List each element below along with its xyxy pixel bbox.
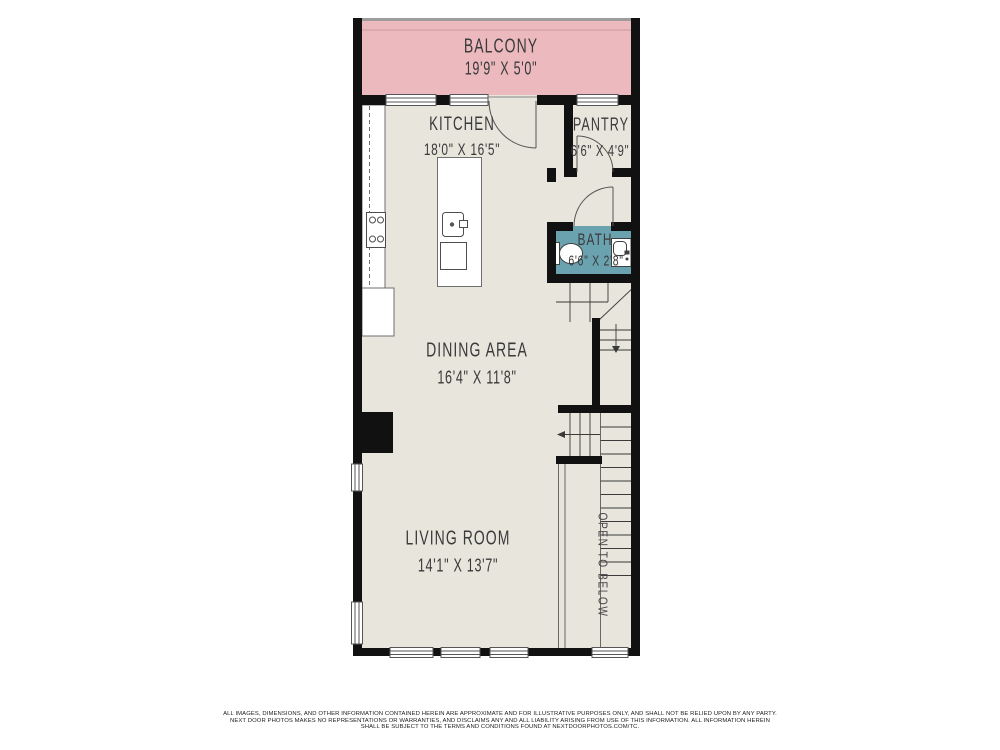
window-symbol [592,648,628,658]
window-symbol [490,648,528,658]
wall-stair-mid [556,456,602,464]
room-label-kitchen: KITCHEN [429,114,495,136]
room-label-dining: DINING AREA [426,340,528,363]
disclaimer-text: ALL IMAGES, DIMENSIONS, AND OTHER INFORM… [0,711,1000,731]
room-dims-bath: 6'6" X 2'8" [568,253,623,270]
floor-plan-page: BALCONY 19'9" X 5'0" KITCHEN 18'0" X 16'… [0,0,1000,750]
wall-bath-top [611,222,640,231]
wall-pantry-left [564,95,573,176]
sink-fixture [460,221,468,228]
wall-hall-stub [547,168,556,182]
fireplace-chase [355,412,393,453]
wall-right [631,18,640,656]
open-to-below-label: OPEN TO BELOW [596,513,611,618]
room-label-bath: BATH [577,230,612,250]
window-symbol [352,602,363,644]
wall-bath-left [547,222,556,283]
drain-dot [626,258,629,261]
room-dims-dining: 16'4" X 11'8" [437,368,516,389]
room-label-living: LIVING ROOM [406,528,511,551]
wall-pantry-bottom [612,168,640,177]
faucet-icon [450,222,454,226]
disclaimer-line: SHALL BE SUBJECT TO THE TERMS AND CONDIT… [0,724,1000,731]
disclaimer-line: ALL IMAGES, DIMENSIONS, AND OTHER INFORM… [0,711,1000,718]
room-label-balcony: BALCONY [464,36,538,59]
room-dims-living: 14'1" X 13'7" [418,556,498,577]
faucet-icon [625,251,630,255]
window-symbol [577,95,618,106]
wall-left [353,18,362,656]
refrigerator [362,288,394,336]
kitchen-counter [362,105,385,288]
window-symbol [386,95,436,106]
room-dims-pantry: 6'6" X 4'9" [571,143,630,161]
window-symbol [441,648,480,658]
wall-stair [592,318,600,413]
room-dims-kitchen: 18'0" X 16'5" [424,140,500,160]
disclaimer-line: NEXT DOOR PHOTOS MAKES NO REPRESENTATION… [0,718,1000,725]
window-symbol [450,95,488,106]
window-symbol [390,648,433,658]
room-dims-balcony: 19'9" X 5'0" [465,59,538,80]
wall-bath-bottom [547,274,640,283]
wall-bath-top [547,222,573,231]
room-label-pantry: PANTRY [573,115,629,136]
wall-stair-landing [558,405,640,413]
window-symbol [352,464,363,491]
wall-pantry-bottom [564,168,577,177]
